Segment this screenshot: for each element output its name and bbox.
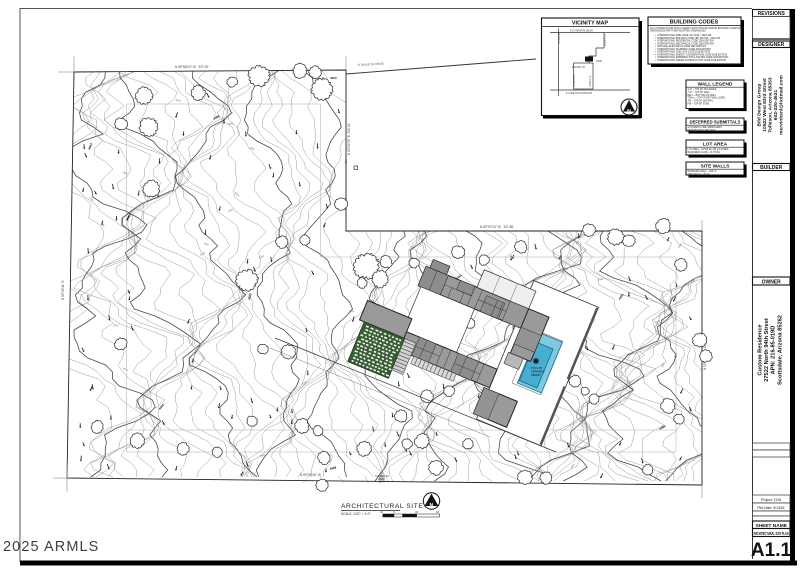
svg-text:N 00°02′35″ E 219.51′: N 00°02′35″ E 219.51′ bbox=[347, 123, 351, 155]
svg-text:PERMIT: PERMIT bbox=[531, 373, 541, 377]
svg-text:Custom Residence: Custom Residence bbox=[758, 324, 764, 375]
svg-text:TOW-x – TOP OF RET WALL LEVEL: TOW-x – TOP OF RET WALL LEVEL bbox=[688, 97, 727, 100]
svg-text:N: N bbox=[627, 109, 631, 115]
svg-text:4496: 4496 bbox=[228, 122, 234, 125]
svg-text:SEPARATE: SEPARATE bbox=[531, 370, 545, 374]
svg-text:Project: 2118: Project: 2118 bbox=[761, 498, 781, 502]
svg-text:602-320-4631: 602-320-4631 bbox=[773, 89, 779, 120]
svg-text:mervinbsnl@hotmail.com: mervinbsnl@hotmail.com bbox=[779, 75, 785, 135]
svg-text:2025 ARMLS: 2025 ARMLS bbox=[3, 539, 99, 555]
svg-text:• NATIONAL ELECTRICAL CODE NE: • NATIONAL ELECTRICAL CODE NEC EDITION bbox=[655, 45, 706, 48]
svg-text:4500: 4500 bbox=[330, 76, 337, 80]
svg-text:• INTERNATIONAL FUEL GAS CODE: • INTERNATIONAL FUEL GAS CODE 2018 EDITI… bbox=[655, 51, 710, 54]
svg-text:OWNER: OWNER bbox=[762, 279, 782, 285]
svg-text:E DYNAMITE BLVD: E DYNAMITE BLVD bbox=[570, 29, 593, 33]
svg-text:• INTERNATIONAL ENERGY CONSER: • INTERNATIONAL ENERGY CONSERVATION CODE… bbox=[655, 54, 727, 57]
svg-text:N 94TH ST: N 94TH ST bbox=[604, 34, 607, 46]
svg-text:1'-0" – TOP OF ADA FENCE: 1'-0" – TOP OF ADA FENCE bbox=[688, 88, 718, 91]
svg-text:32: 32 bbox=[415, 510, 419, 514]
svg-text:DEFERRED SUBMITTALS: DEFERRED SUBMITTALS bbox=[690, 120, 741, 125]
svg-text:LOT AREA – 43,560 SF, OR 1.0 A: LOT AREA – 43,560 SF, OR 1.0 ACRES bbox=[688, 148, 729, 151]
svg-text:N 89°55′46″ W: N 89°55′46″ W bbox=[300, 473, 321, 477]
svg-text:Bild Design Group: Bild Design Group bbox=[757, 84, 763, 127]
svg-text:N 00°03′11″ E: N 00°03′11″ E bbox=[61, 280, 65, 300]
svg-text:FW – TOP OF STEM: FW – TOP OF STEM bbox=[688, 104, 710, 106]
svg-text:REVISIONS: REVISIONS bbox=[758, 11, 786, 17]
svg-text:ARCHITECTURAL SITE PLAN: ARCHITECTURAL SITE PLAN bbox=[754, 531, 789, 536]
svg-text:N: N bbox=[430, 503, 434, 509]
svg-text:SITE WALLS – 85 LF: SITE WALLS – 85 LF bbox=[688, 173, 710, 176]
svg-text:4502: 4502 bbox=[113, 324, 119, 327]
svg-text:N 89°57′24″ W 337.86′: N 89°57′24″ W 337.86′ bbox=[480, 225, 514, 229]
svg-text:VICINITY MAP: VICINITY MAP bbox=[572, 21, 609, 27]
svg-text:Plot Date: 9/13/24: Plot Date: 9/13/24 bbox=[757, 506, 784, 510]
svg-text:• INTERNATIONAL PLUMBING CODE: • INTERNATIONAL PLUMBING CODE 2018 EDITI… bbox=[655, 48, 711, 51]
svg-text:REQUIRED CLASS – R-TO RE: REQUIRED CLASS – R-TO RE bbox=[688, 151, 721, 154]
svg-text:BUILDER: BUILDER bbox=[760, 165, 783, 171]
svg-text:• INTERNATIONAL BUILDING CODE: • INTERNATIONAL BUILDING CODE, IBC 2017/… bbox=[655, 37, 721, 40]
svg-text:• INTERNATIONAL MECHANICAL CO: • INTERNATIONAL MECHANICAL CODE 2018 EDI… bbox=[655, 43, 714, 46]
svg-text:AREA: AREA bbox=[378, 478, 385, 481]
svg-text:• INTERNATIONAL SWIMMING POOL: • INTERNATIONAL SWIMMING POOL AND SPA CO… bbox=[655, 56, 729, 59]
svg-text:E LONE MOUNTAIN RD: E LONE MOUNTAIN RD bbox=[566, 92, 592, 95]
svg-text:32: 32 bbox=[380, 510, 384, 514]
svg-text:ARCHITECTURAL SITE: ARCHITECTURAL SITE bbox=[341, 503, 423, 510]
svg-text:• INTERNATIONAL GREEN CONSTRU: • INTERNATIONAL GREEN CONSTRUCTION CODE … bbox=[655, 59, 726, 62]
svg-text:PREFAB ROOF TRUSSES: PREFAB ROOF TRUSSES bbox=[688, 129, 716, 132]
svg-text:BW-x – BOTTOM OF WALL: BW-x – BOTTOM OF WALL bbox=[688, 94, 717, 97]
svg-text:SCALE: 1/32″ = 1′-0″: SCALE: 1/32″ = 1′-0″ bbox=[341, 512, 371, 516]
svg-text:64: 64 bbox=[436, 510, 440, 514]
svg-text:A1.1: A1.1 bbox=[751, 540, 792, 561]
svg-text:AUTOMATIC FIRE SPRINKLERS: AUTOMATIC FIRE SPRINKLERS bbox=[688, 126, 723, 129]
svg-text:WALL LEGEND: WALL LEGEND bbox=[698, 82, 733, 88]
svg-text:POOL BY: POOL BY bbox=[531, 366, 543, 370]
svg-text:7'-0" – TOP OF WALL: 7'-0" – TOP OF WALL bbox=[688, 91, 711, 94]
svg-text:N 89°58′24″ W 337.00′: N 89°58′24″ W 337.00′ bbox=[175, 65, 209, 69]
svg-text:Tolleson, Arizona 85353: Tolleson, Arizona 85353 bbox=[768, 77, 774, 132]
svg-text:• INTERNATIONAL FIRE CODE, IF: • INTERNATIONAL FIRE CODE, IFC 2018 – OR… bbox=[655, 34, 712, 37]
svg-text:TW – TOP OF NATURAL: TW – TOP OF NATURAL bbox=[688, 100, 714, 103]
svg-text:RETAINING WALL – 324 LF: RETAINING WALL – 324 LF bbox=[688, 170, 717, 173]
svg-text:Scottsdale, Arizona 85262: Scottsdale, Arizona 85262 bbox=[777, 315, 783, 385]
svg-text:• INTERNATIONAL RESIDENTIAL C: • INTERNATIONAL RESIDENTIAL CODE 2018 ED… bbox=[655, 40, 714, 43]
svg-text:SITE: SITE bbox=[596, 59, 602, 63]
svg-text:N 94TH PL: N 94TH PL bbox=[589, 75, 592, 87]
svg-text:10522 West 83rd Street: 10522 West 83rd Street bbox=[762, 78, 768, 132]
svg-text:SITE WALLS: SITE WALLS bbox=[701, 164, 731, 170]
svg-text:27522 North 94th Street: 27522 North 94th Street bbox=[764, 318, 770, 382]
svg-text:N 93RD WY: N 93RD WY bbox=[573, 74, 576, 87]
svg-text:N PIMA RD: N PIMA RD bbox=[558, 32, 561, 44]
svg-text:APN: 216-85-019D: APN: 216-85-019D bbox=[771, 326, 777, 375]
svg-text:E MARK LN: E MARK LN bbox=[572, 66, 585, 69]
svg-text:ORDINANCES PER TOWN ADOPTED OR: ORDINANCES PER TOWN ADOPTED ORDINANCES bbox=[650, 29, 706, 32]
svg-text:BUILDING CODES: BUILDING CODES bbox=[670, 20, 719, 26]
svg-text:ALL CONSTRUCTION SHALL COMPLY: ALL CONSTRUCTION SHALL COMPLY WITH THE F… bbox=[650, 27, 743, 30]
svg-text:DESIGNER: DESIGNER bbox=[758, 42, 785, 48]
svg-text:LOT AREA: LOT AREA bbox=[703, 142, 728, 148]
